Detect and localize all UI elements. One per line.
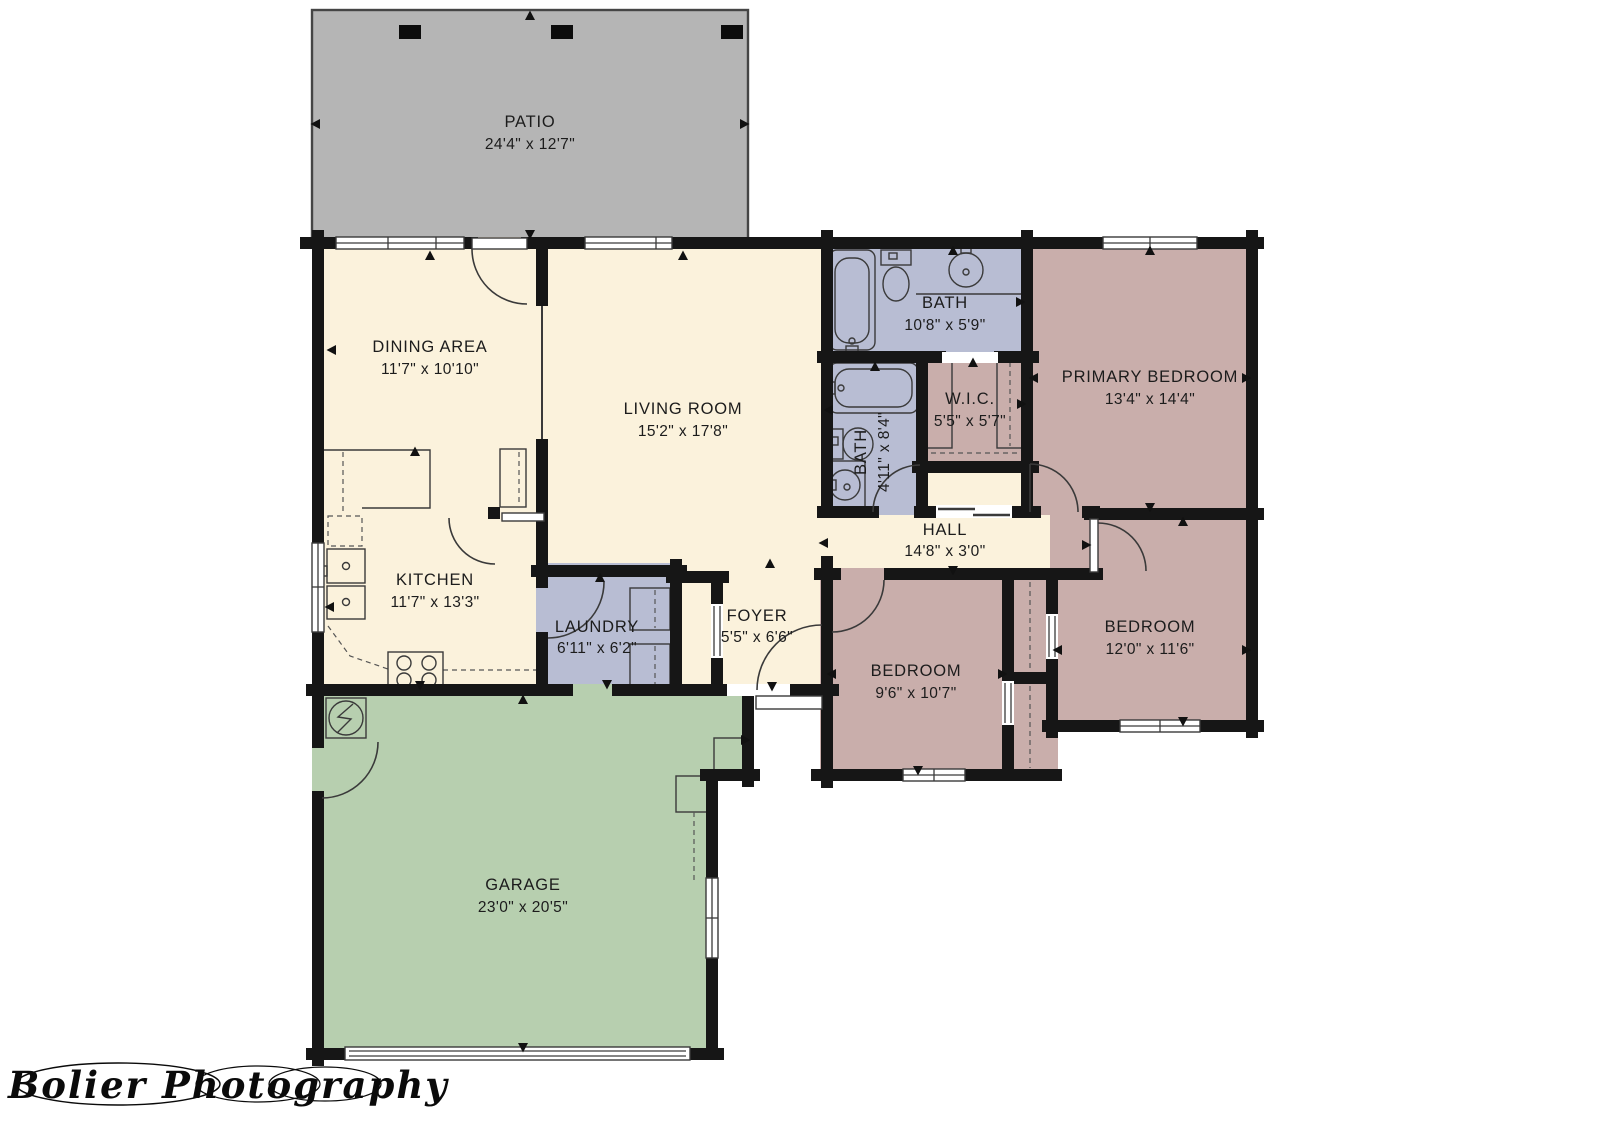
dims-living: 15'2" x 17'8"	[638, 423, 728, 440]
room-garage-floor	[312, 684, 754, 1060]
dims-wic: 5'5" x 5'7"	[934, 413, 1006, 430]
patio-post	[399, 25, 421, 39]
label-hall: HALL	[923, 521, 967, 539]
dims-bath1: 10'8" x 5'9"	[904, 317, 985, 334]
floorplan-page: PATIO 24'4" x 12'7" DINING AREA 11'7" x …	[0, 0, 1600, 1133]
window-bedroom2	[1120, 720, 1200, 732]
dims-primary: 13'4" x 14'4"	[1105, 391, 1195, 408]
patio-post	[551, 25, 573, 39]
room-bath2-floor	[822, 355, 926, 515]
label-foyer: FOYER	[727, 607, 788, 625]
pantry-wall-stub	[488, 507, 500, 519]
window-dining	[336, 237, 464, 249]
bedroom2-door-leaf	[1090, 519, 1098, 572]
label-bedroom2: BEDROOM	[1105, 618, 1196, 636]
label-living: LIVING ROOM	[624, 400, 743, 418]
dims-bath2: 4'11" x 8'4"	[876, 412, 893, 492]
label-patio: PATIO	[504, 113, 555, 131]
dims-bedroom1: 9'6" x 10'7"	[875, 685, 956, 702]
watermark-text: Bolier Photography	[7, 1063, 449, 1107]
label-bath2: BATH	[852, 429, 870, 475]
garage-overhead-door	[345, 1047, 690, 1060]
window-living	[585, 237, 672, 249]
room-dining-kitchen-floor	[312, 237, 542, 690]
linen-sliding-door	[936, 505, 1012, 518]
front-step	[756, 696, 822, 709]
label-kitchen: KITCHEN	[396, 571, 474, 589]
dims-kitchen: 11'7" x 13'3"	[390, 594, 479, 611]
floorplan-drawing: PATIO 24'4" x 12'7" DINING AREA 11'7" x …	[0, 0, 1600, 1133]
label-laundry: LAUNDRY	[555, 618, 639, 636]
window-bedroom1	[903, 769, 965, 781]
label-bath1: BATH	[922, 294, 968, 312]
front-door-opening	[727, 684, 790, 696]
closet-bifold-bottom	[1002, 681, 1014, 725]
dims-bedroom2: 12'0" x 11'6"	[1105, 641, 1194, 658]
dims-laundry: 6'11" x 6'2"	[557, 640, 637, 657]
label-dining: DINING AREA	[372, 338, 487, 356]
dims-garage: 23'0" x 20'5"	[478, 899, 568, 916]
dims-foyer: 5'5" x 6'6"	[721, 629, 793, 646]
window-kitchen	[312, 543, 324, 632]
dims-patio: 24'4" x 12'7"	[485, 136, 575, 153]
dims-dining: 11'7" x 10'10"	[381, 361, 479, 378]
pantry-door-leaf	[502, 513, 544, 521]
watermark: Bolier Photography	[7, 1063, 449, 1107]
bath1-door-opening	[942, 352, 998, 363]
label-wic: W.I.C.	[945, 390, 995, 408]
label-primary: PRIMARY BEDROOM	[1062, 368, 1238, 386]
label-bedroom1: BEDROOM	[871, 662, 962, 680]
window-garage	[706, 878, 718, 958]
label-garage: GARAGE	[485, 876, 560, 894]
dims-hall: 14'8" x 3'0"	[904, 543, 985, 560]
patio-post	[721, 25, 743, 39]
patio-door-leaf	[472, 238, 527, 249]
closet-bifold-top	[1046, 614, 1058, 659]
room-wic-floor	[918, 352, 1030, 470]
